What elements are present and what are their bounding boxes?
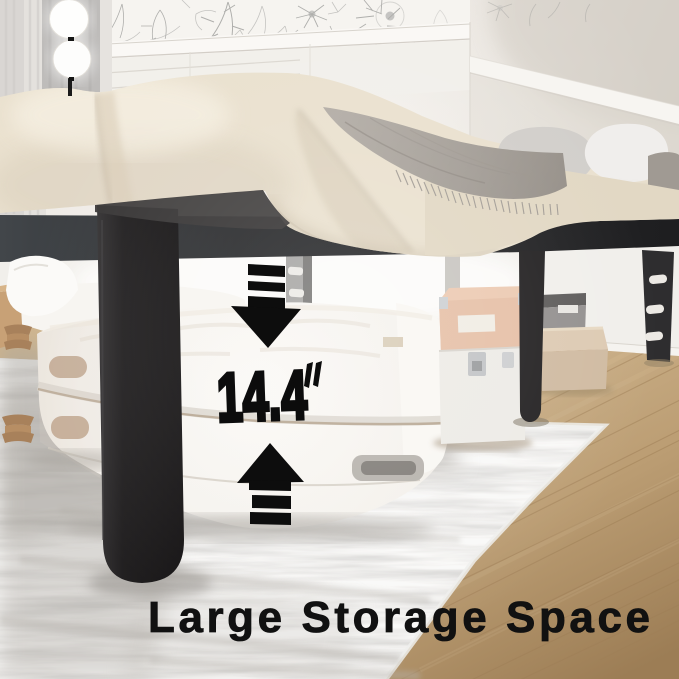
svg-text:14.4: 14.4 [216, 356, 309, 436]
svg-text:Large Storage Space: Large Storage Space [148, 593, 650, 642]
